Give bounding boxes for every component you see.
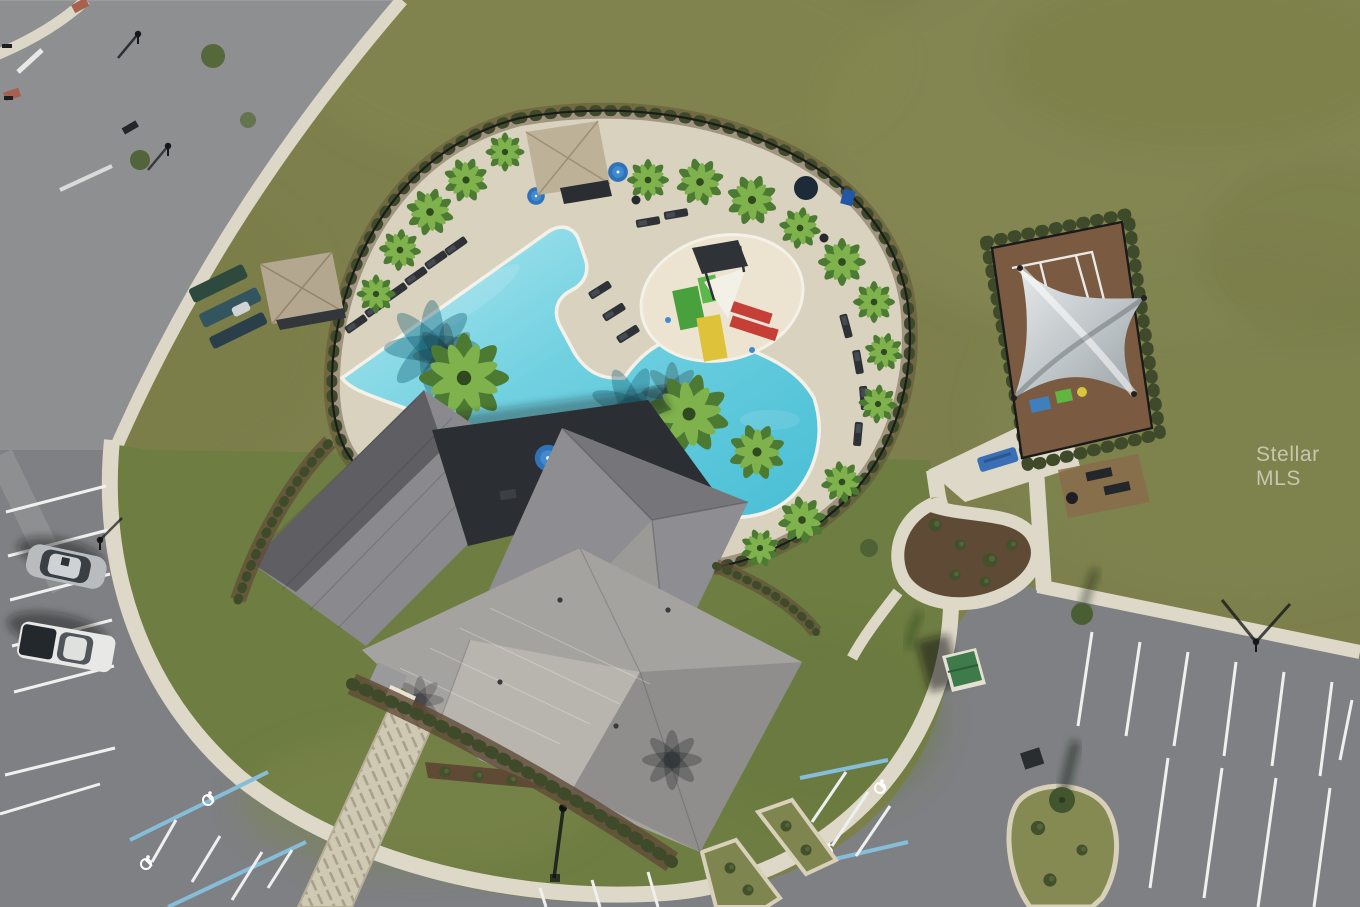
street-tree bbox=[130, 150, 150, 170]
street-tree bbox=[240, 112, 256, 128]
street-tree bbox=[201, 44, 225, 68]
sign-post bbox=[4, 96, 13, 100]
sign-post bbox=[2, 44, 12, 48]
palm-shadow-on-roof bbox=[642, 730, 702, 790]
loop-walk bbox=[898, 505, 1038, 604]
trash-can bbox=[632, 196, 641, 205]
scene-canvas bbox=[0, 0, 1360, 907]
spa-cover bbox=[794, 176, 818, 200]
pool-cabana-left bbox=[260, 252, 346, 330]
trash-can bbox=[820, 234, 829, 243]
grill bbox=[1066, 492, 1078, 504]
watermark: Stellar MLS bbox=[1256, 443, 1360, 491]
pool-cabana-top bbox=[526, 121, 612, 204]
aerial-photo: Stellar MLS bbox=[0, 0, 1360, 907]
pool-umbrella bbox=[608, 162, 628, 182]
sliver-tree bbox=[860, 539, 878, 557]
